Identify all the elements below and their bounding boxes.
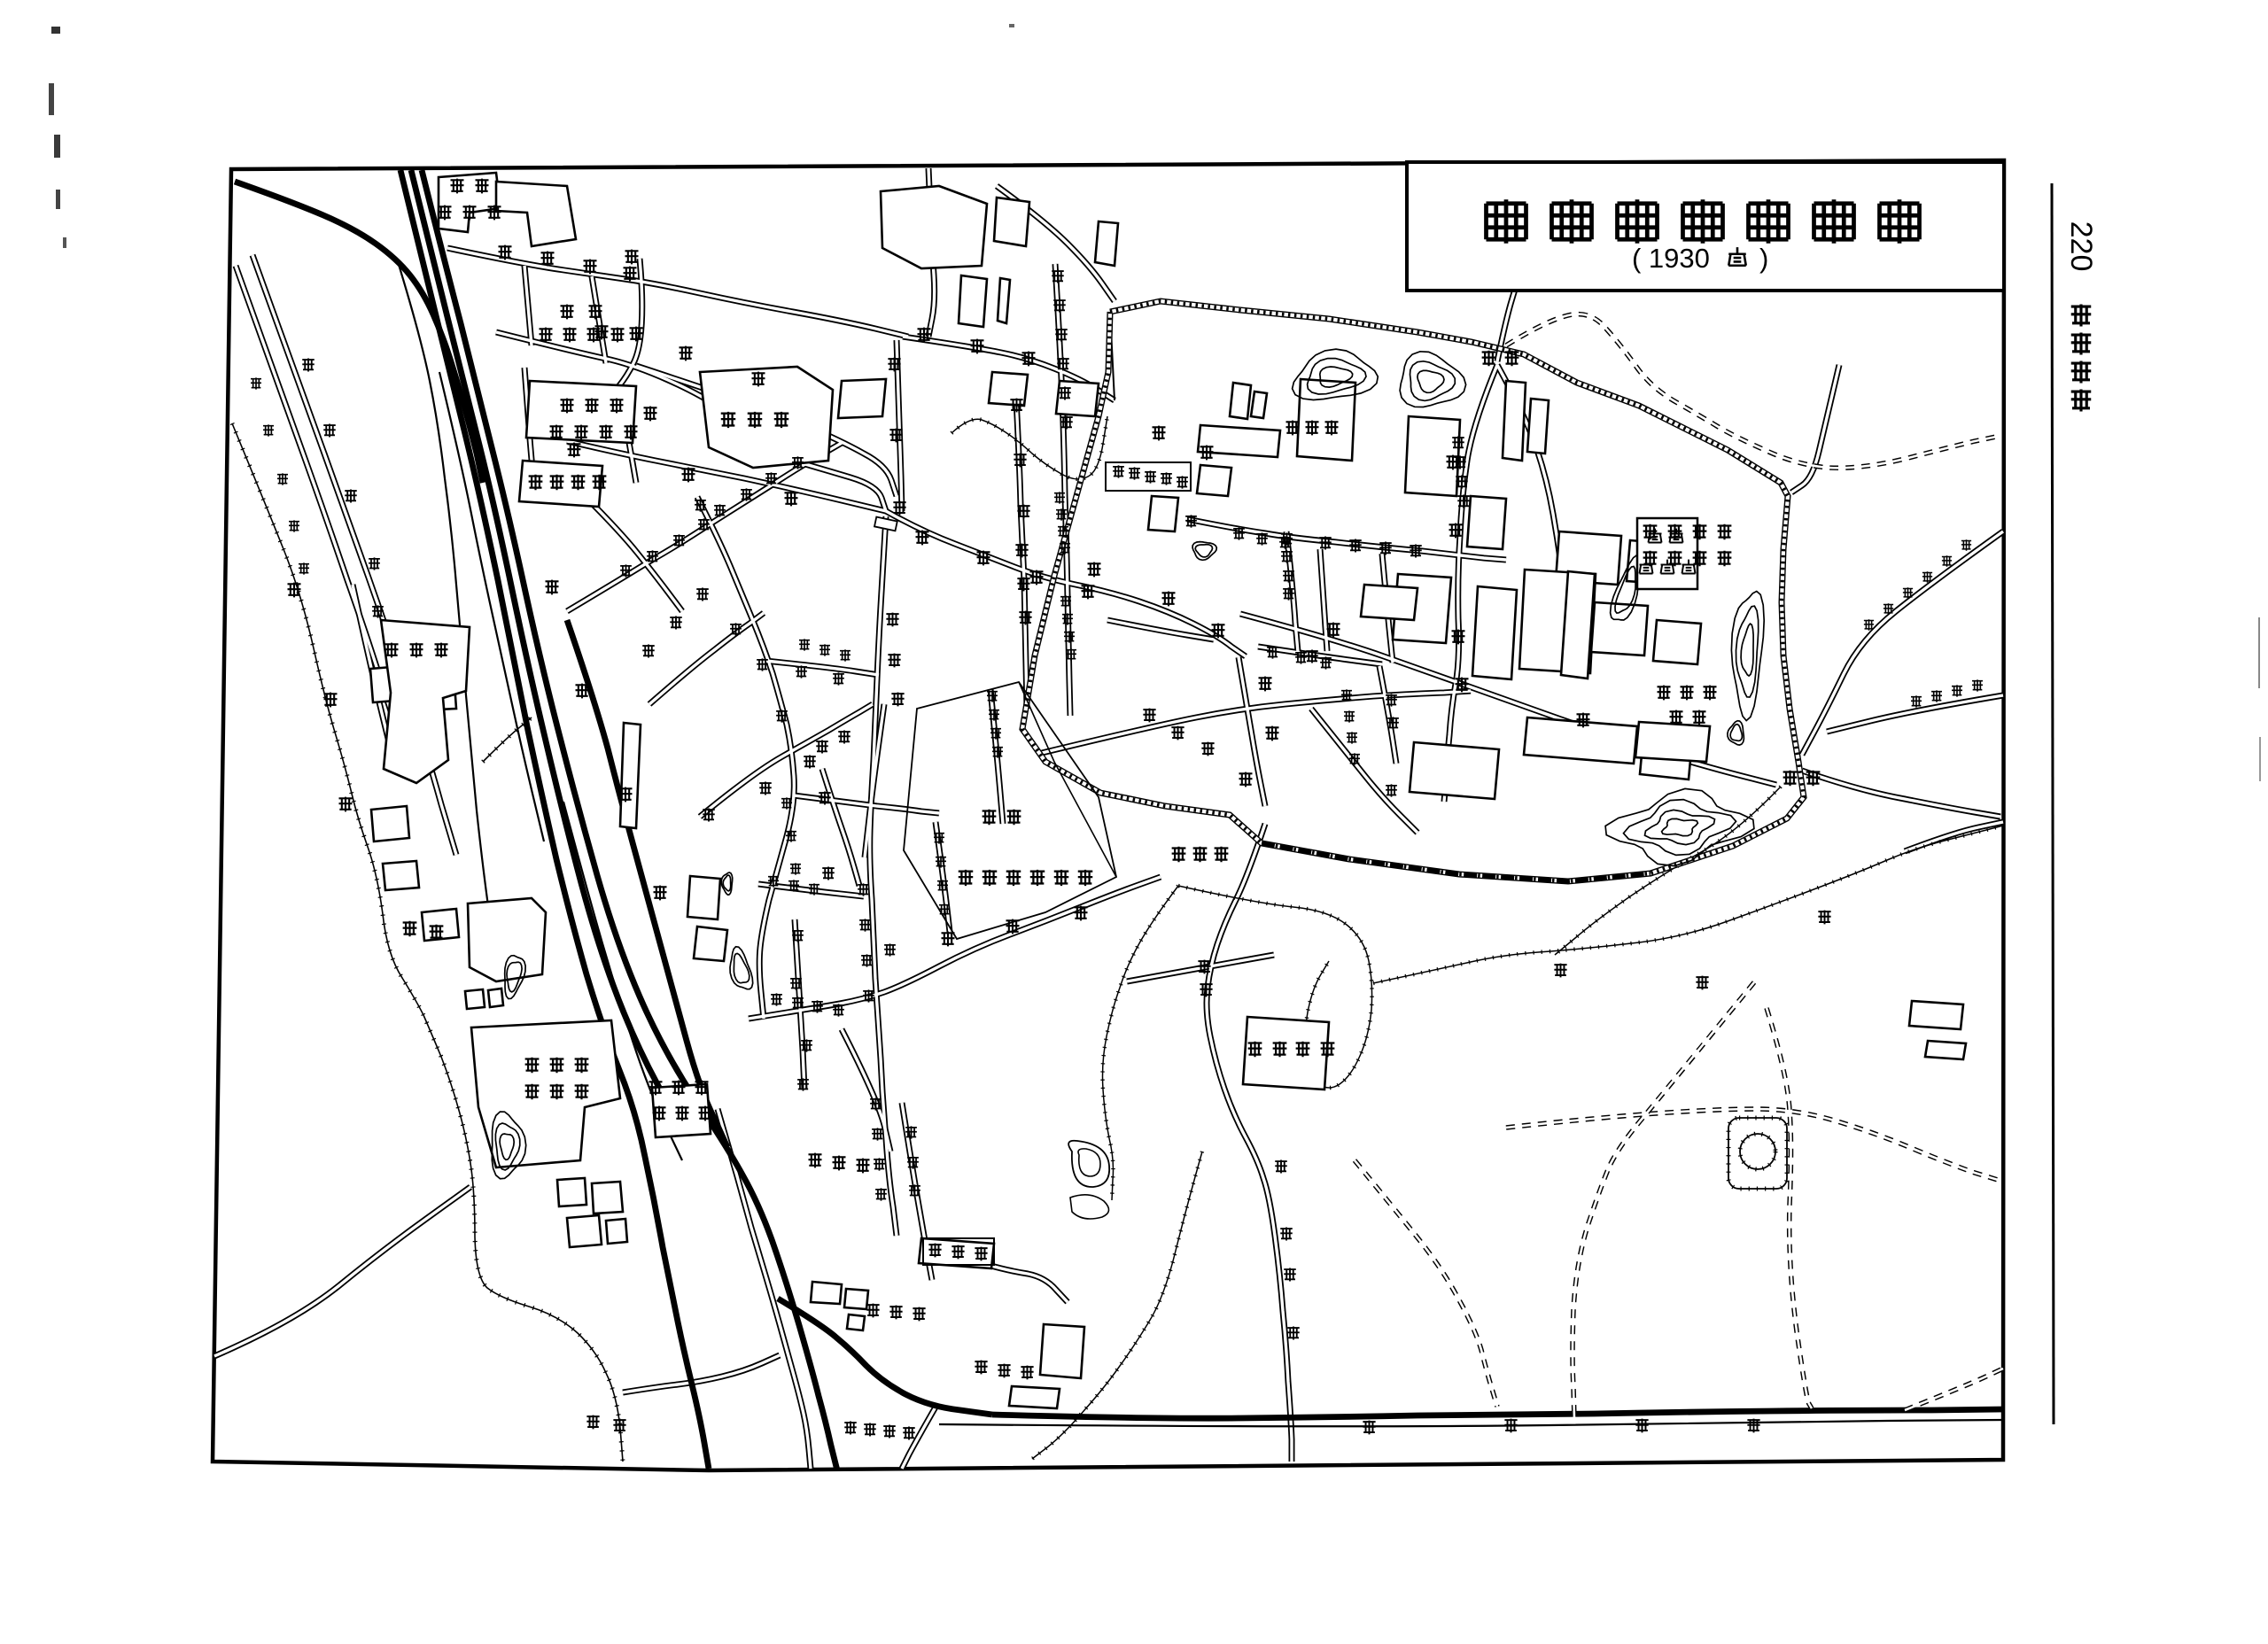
svg-text:): ): [1759, 243, 1768, 274]
svg-text:220: 220: [2064, 221, 2098, 272]
svg-text:( 1930: ( 1930: [1632, 243, 1710, 274]
